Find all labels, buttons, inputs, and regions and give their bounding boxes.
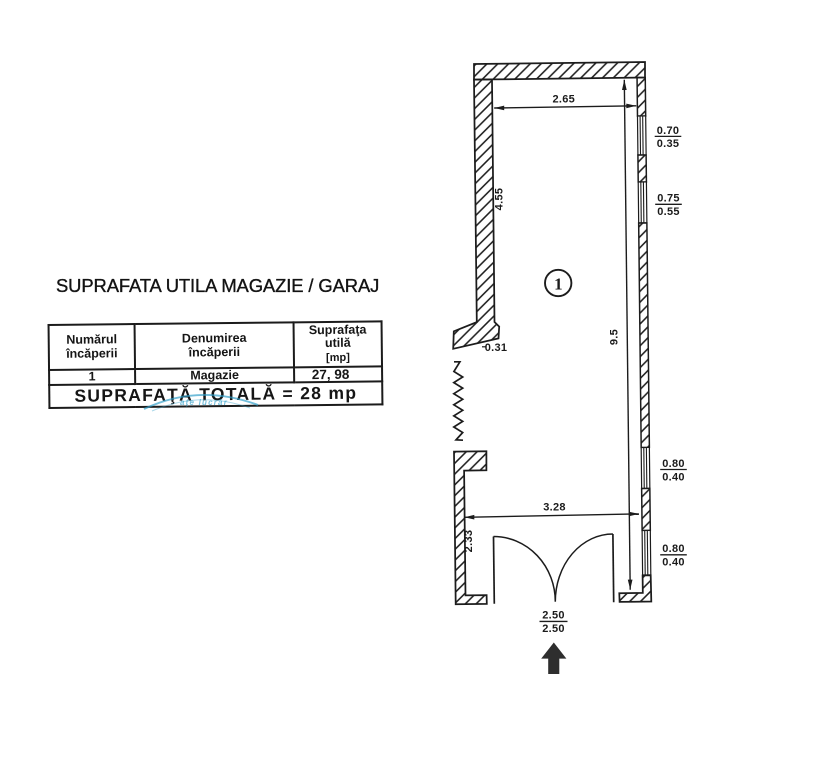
svg-text:4.55: 4.55 bbox=[494, 188, 506, 211]
svg-text:0.40: 0.40 bbox=[662, 557, 685, 569]
svg-text:0.80: 0.80 bbox=[662, 458, 685, 470]
svg-text:0.55: 0.55 bbox=[657, 206, 680, 218]
svg-text:0.70: 0.70 bbox=[657, 125, 680, 137]
svg-text:2.50: 2.50 bbox=[542, 610, 565, 622]
svg-text:0.80: 0.80 bbox=[662, 543, 685, 555]
svg-text:3.28: 3.28 bbox=[543, 502, 566, 514]
svg-text:0.75: 0.75 bbox=[657, 193, 680, 205]
svg-text:2.65: 2.65 bbox=[552, 94, 575, 106]
svg-text:2.33: 2.33 bbox=[463, 530, 475, 553]
svg-text:1: 1 bbox=[554, 275, 563, 294]
svg-text:9.5: 9.5 bbox=[609, 329, 621, 345]
svg-text:0.40: 0.40 bbox=[662, 471, 685, 483]
svg-text:2.50: 2.50 bbox=[542, 623, 565, 635]
svg-text:0.31: 0.31 bbox=[485, 342, 508, 354]
svg-text:0.35: 0.35 bbox=[657, 138, 680, 150]
